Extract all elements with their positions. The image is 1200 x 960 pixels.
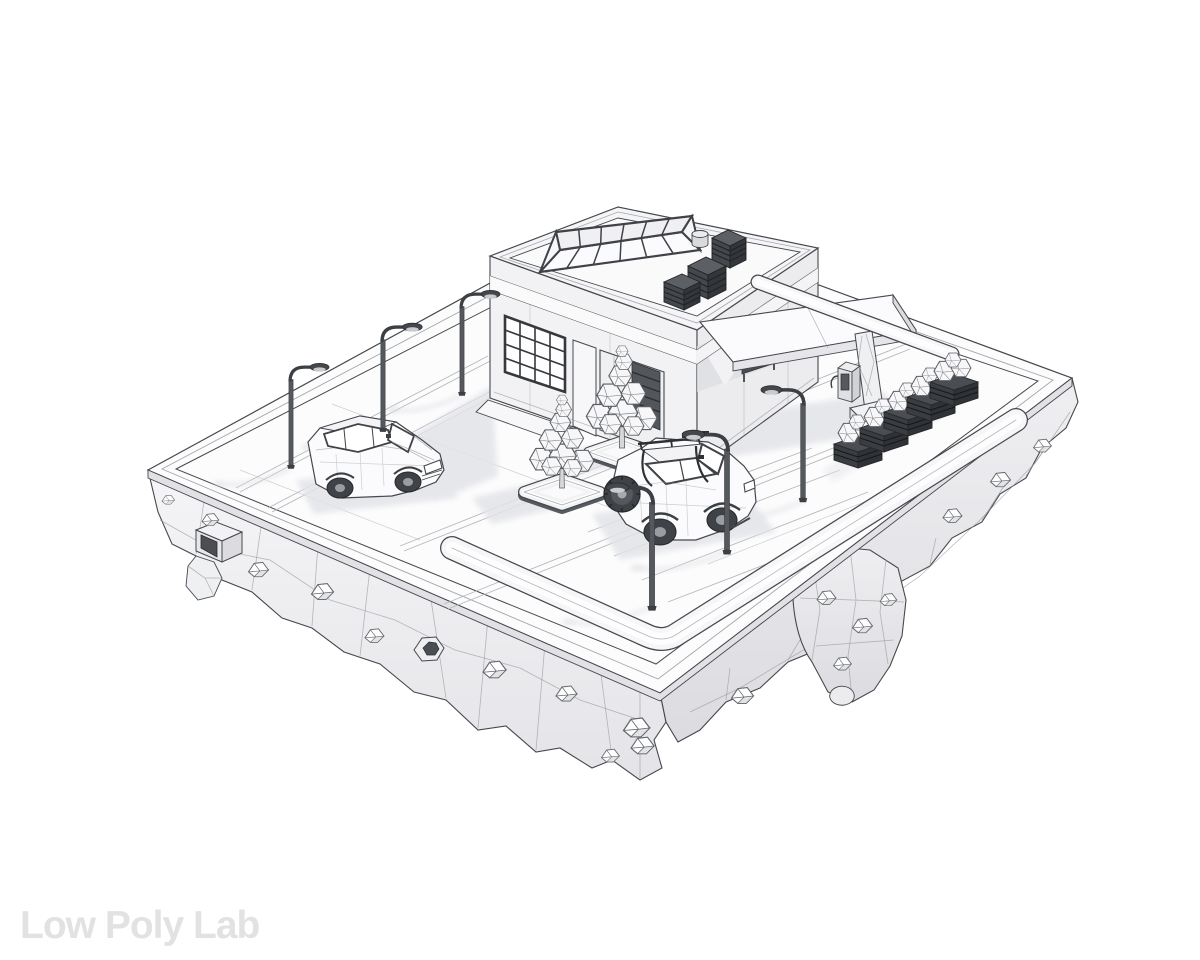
hvac-unit-3 xyxy=(664,274,700,310)
watermark-text: Low Poly Lab xyxy=(20,904,260,947)
roof-vent xyxy=(692,231,708,248)
scene-illustration: Low Poly Lab xyxy=(0,0,1200,960)
render-canvas: Low Poly Lab xyxy=(0,0,1200,960)
